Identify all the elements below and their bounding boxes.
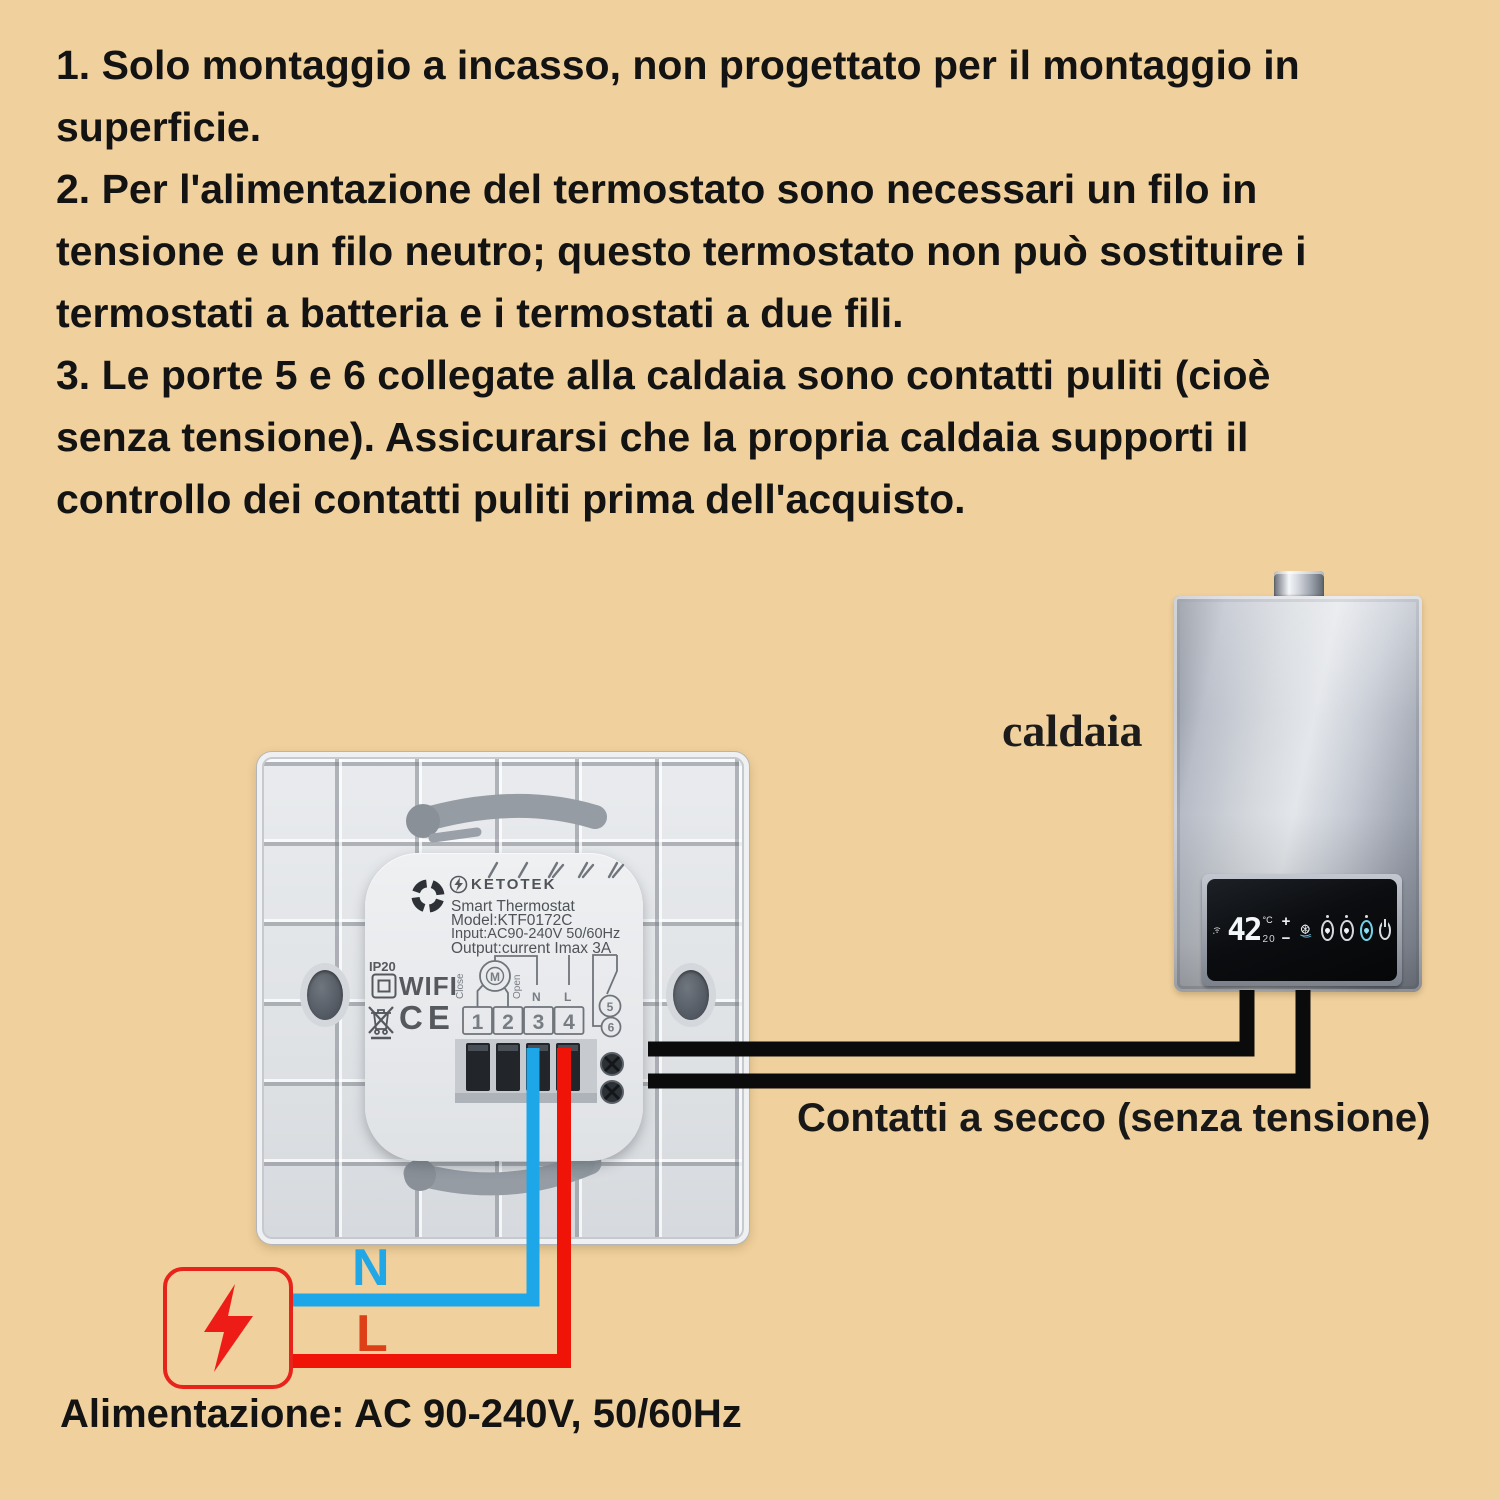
plus-minus-controls[interactable]: + −	[1282, 913, 1291, 947]
port-screws	[601, 1053, 623, 1103]
boiler-label: caldaia	[1002, 704, 1143, 757]
boiler-display-panel: 42 °C 20 + −	[1202, 874, 1402, 986]
close-label: Close	[455, 973, 466, 999]
terminal-2: 2	[502, 1011, 514, 1034]
terminal-1: 1	[472, 1011, 484, 1034]
temperature-secondary: 20	[1263, 934, 1276, 945]
mounting-hole-right	[666, 963, 716, 1027]
mounting-hole-left	[300, 963, 350, 1027]
neutral-wire-label: N	[352, 1238, 390, 1298]
product-diagram: 1. Solo montaggio a incasso, non progett…	[0, 0, 1500, 1500]
boiler-button-3[interactable]	[1360, 920, 1373, 941]
terminal-l-label: L	[564, 990, 571, 1004]
temperature-unit: °C	[1263, 915, 1276, 925]
port-6-label: 6	[608, 1021, 615, 1035]
boiler-display-screen: 42 °C 20 + −	[1207, 879, 1397, 981]
temperature-readout: 42 °C 20	[1227, 915, 1275, 945]
dry-contact-label: Contatti a secco (senza tensione)	[797, 1096, 1430, 1141]
power-spec-label: Alimentazione: AC 90-240V, 50/60Hz	[60, 1392, 742, 1437]
lightning-bolt-icon	[199, 1282, 257, 1374]
boiler-flue-pipe	[1274, 571, 1324, 598]
instructions-text: 1. Solo montaggio a incasso, non progett…	[56, 34, 1464, 530]
boiler-button-1[interactable]	[1321, 920, 1334, 941]
terminal-3: 3	[533, 1011, 545, 1034]
power-source-box	[163, 1267, 293, 1389]
motor-label: M	[490, 970, 500, 984]
boiler-button-2[interactable]	[1340, 920, 1353, 941]
open-label: Open	[512, 975, 523, 999]
temperature-value: 42	[1227, 915, 1260, 945]
printed-wiring-diagram: 1 2 3 4 M Close Open N L 5 6	[365, 853, 643, 1161]
fan-icon	[1296, 915, 1315, 945]
live-wire-label: L	[356, 1304, 388, 1364]
terminal-n-label: N	[532, 990, 541, 1004]
thermostat-module: KETOTEK Smart Thermostat Model:KTF0172C …	[365, 853, 643, 1161]
terminal-4: 4	[563, 1011, 575, 1034]
thermostat-back-plate: KETOTEK Smart Thermostat Model:KTF0172C …	[257, 752, 749, 1244]
wifi-icon	[1213, 923, 1221, 937]
port-5-label: 5	[607, 1000, 614, 1014]
power-button-icon[interactable]	[1379, 921, 1391, 940]
plus-button[interactable]: +	[1282, 913, 1291, 930]
minus-button[interactable]: −	[1282, 930, 1291, 947]
